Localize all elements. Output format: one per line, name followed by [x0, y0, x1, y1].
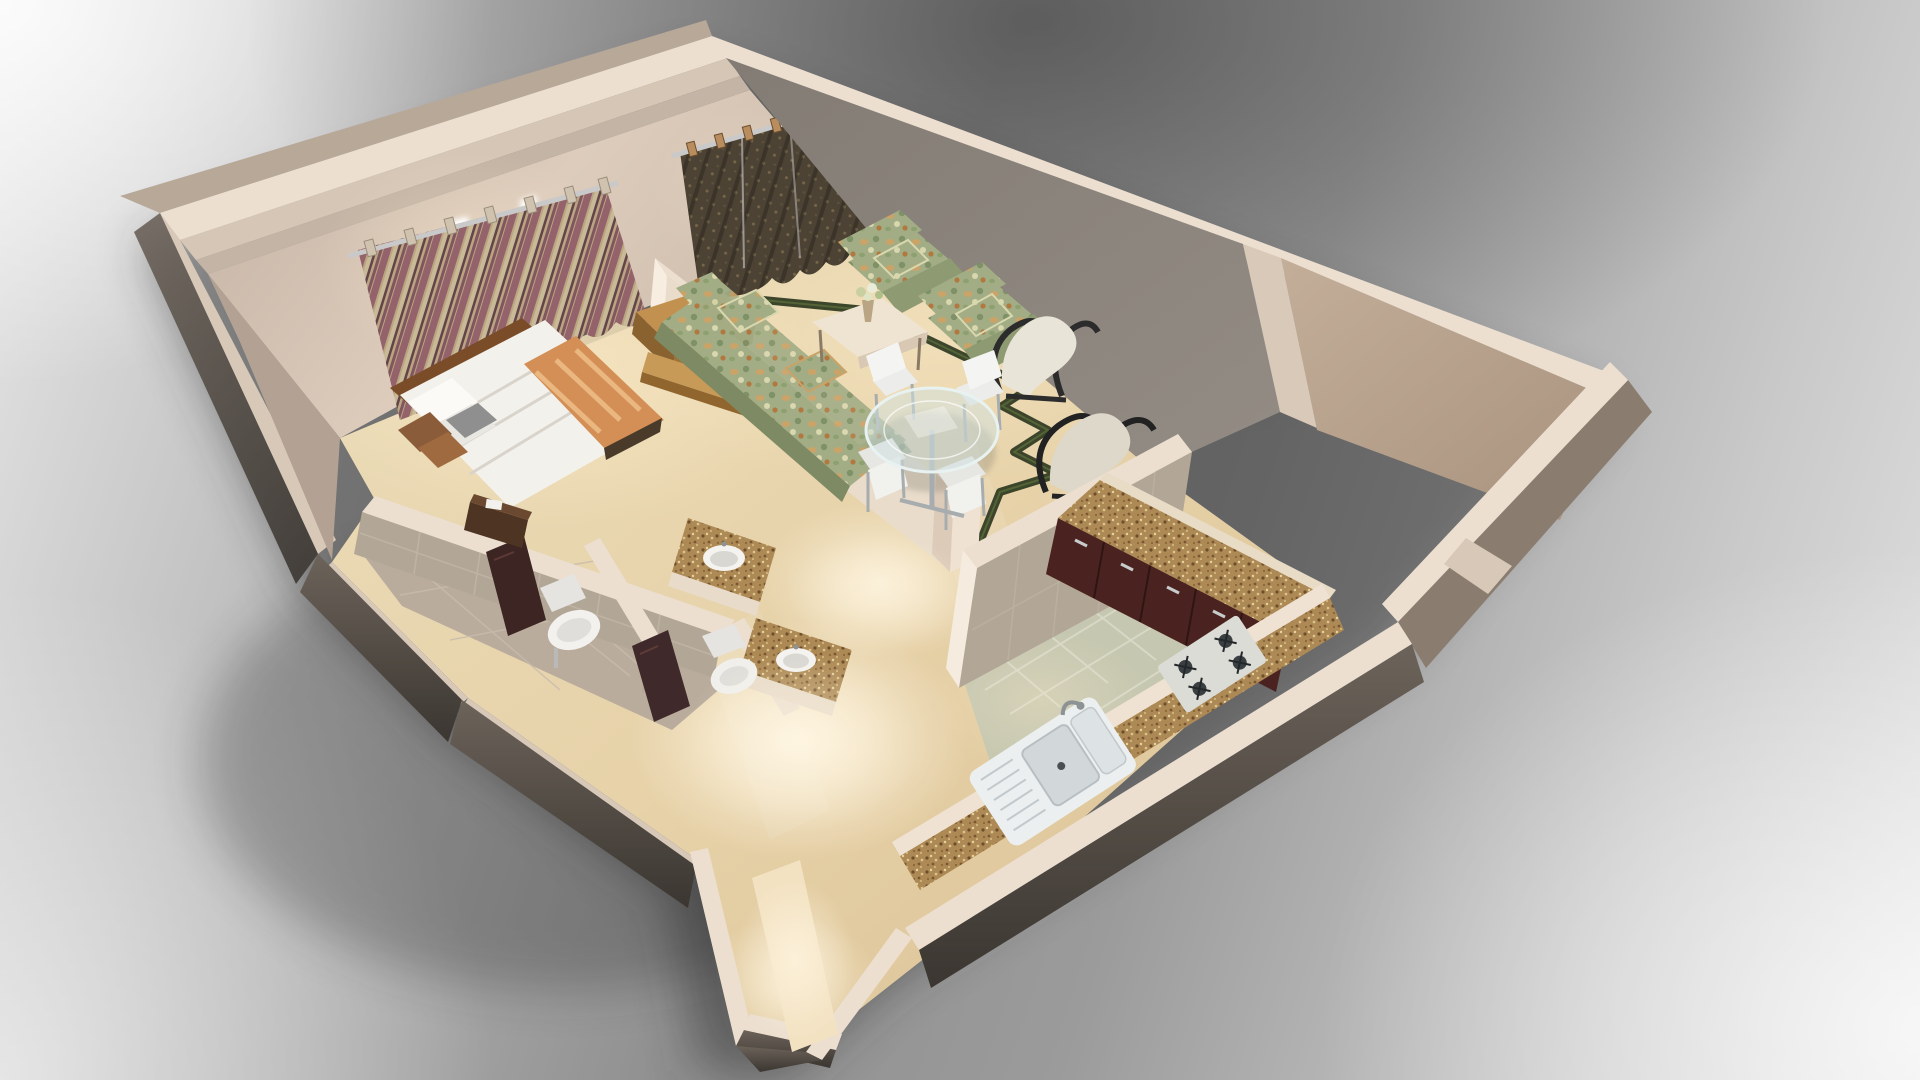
floorplan-render [0, 0, 1920, 1080]
render-canvas: 3D cutaway floor plan of a one-bedroom a… [0, 0, 1920, 1080]
